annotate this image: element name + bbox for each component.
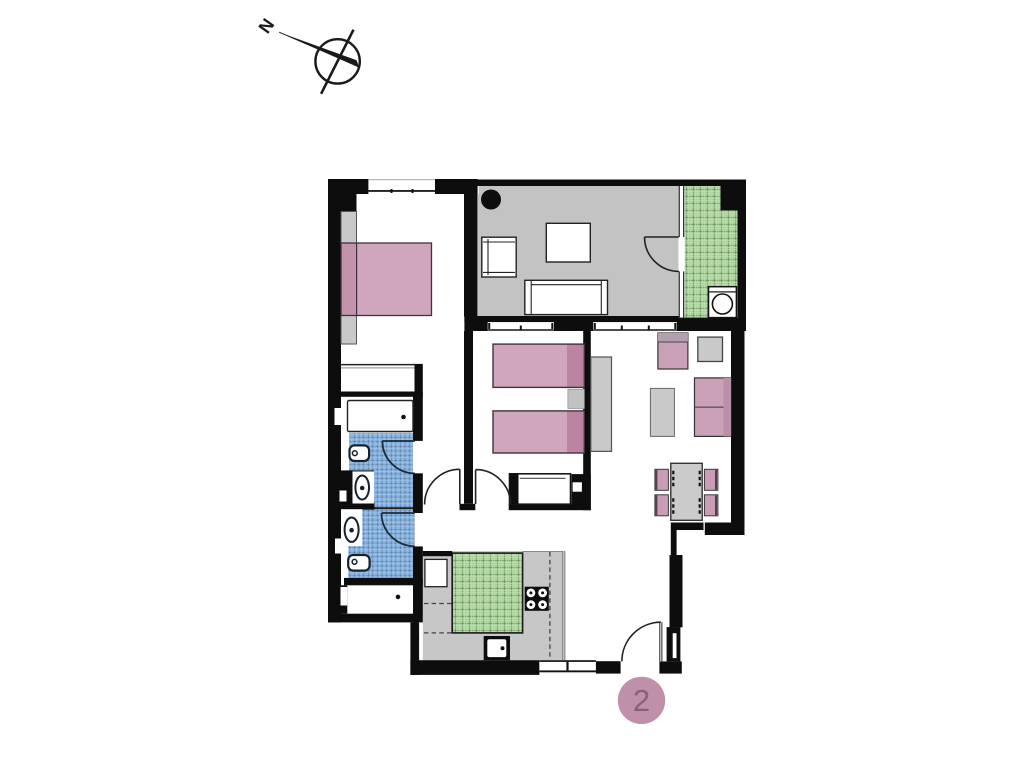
svg-text:2: 2 (633, 683, 650, 718)
